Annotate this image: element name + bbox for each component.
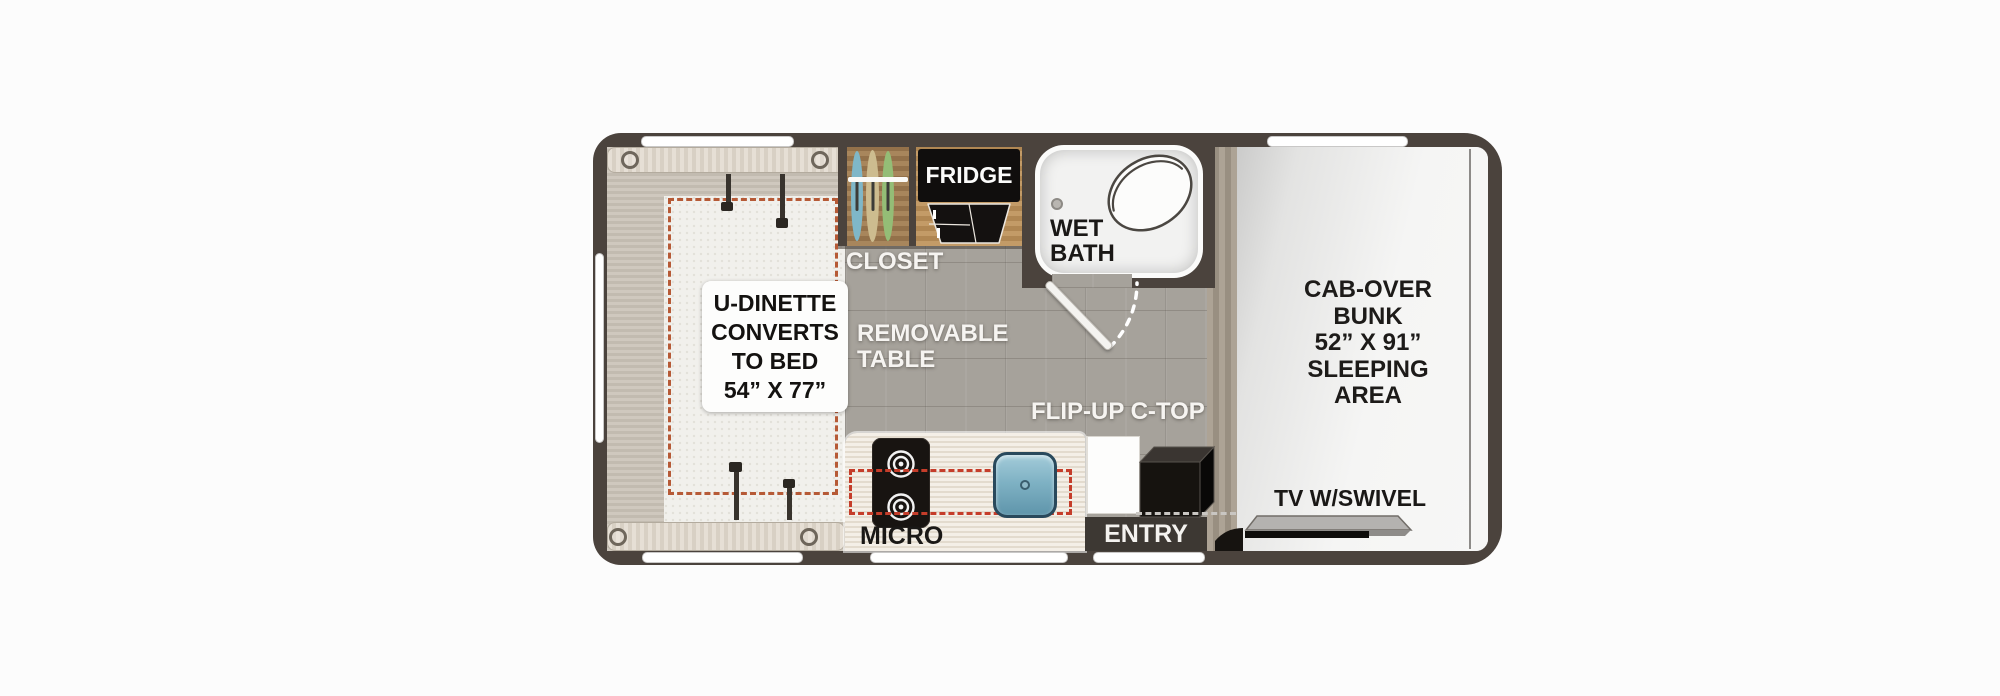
wet-bath-label: WET BATH	[1050, 216, 1115, 266]
table-post-foot	[729, 462, 742, 472]
clothes-green-icon	[882, 151, 894, 241]
window-slot-top-left	[641, 136, 794, 147]
bench-grommet	[621, 151, 639, 169]
bench-grommet	[811, 151, 829, 169]
entry-label: ENTRY	[1085, 517, 1207, 551]
fridge-label: FRIDGE	[919, 162, 1019, 189]
closet-rod	[848, 177, 908, 182]
table-post-foot	[776, 218, 788, 228]
removable-table-label: REMOVABLE TABLE	[857, 321, 1009, 373]
entry-step-icon	[1134, 442, 1218, 522]
clothes-tan-icon	[866, 150, 879, 242]
tv-icon	[1210, 510, 1420, 555]
wall-divider	[909, 147, 916, 246]
cab-over-bunk-label: CAB-OVER BUNK 52” X 91” SLEEPING AREA	[1283, 277, 1453, 410]
wall-divider	[838, 147, 847, 246]
table-post	[734, 464, 739, 520]
window-slot-top-right	[1267, 136, 1408, 147]
closet-label: CLOSET	[846, 249, 943, 275]
dinette-bench-top	[607, 147, 845, 173]
window-slot-bottom-left	[642, 552, 803, 563]
clothes-blue-icon	[851, 151, 863, 241]
window-slot-bottom-middle	[870, 552, 1068, 563]
tv-swivel-label: TV W/SWIVEL	[1262, 486, 1438, 511]
bench-grommet	[800, 528, 818, 546]
window-slot-left	[595, 253, 604, 443]
sink-drain-icon	[1020, 480, 1030, 490]
flip-up-ctop-label: FLIP-UP C-TOP	[1031, 399, 1205, 425]
flip-up-counter-panel	[1086, 436, 1140, 514]
table-post	[780, 174, 785, 220]
table-post	[726, 174, 731, 204]
bunk-right-strip	[1473, 147, 1488, 551]
shower-drain-icon	[1051, 198, 1063, 210]
entry-area: ENTRY	[1085, 517, 1207, 551]
dinette-label: U-DINETTE CONVERTS TO BED 54” X 77”	[702, 281, 848, 412]
rv-floorplan: FRIDGE WET BATH ENTRY	[0, 0, 2000, 696]
micro-label: MICRO	[860, 524, 943, 549]
bench-grommet	[609, 528, 627, 546]
bunk-edge-line	[1469, 149, 1471, 549]
table-post-foot	[721, 202, 733, 211]
window-slot-bottom-entry	[1093, 552, 1205, 563]
table-post-foot	[783, 479, 795, 488]
